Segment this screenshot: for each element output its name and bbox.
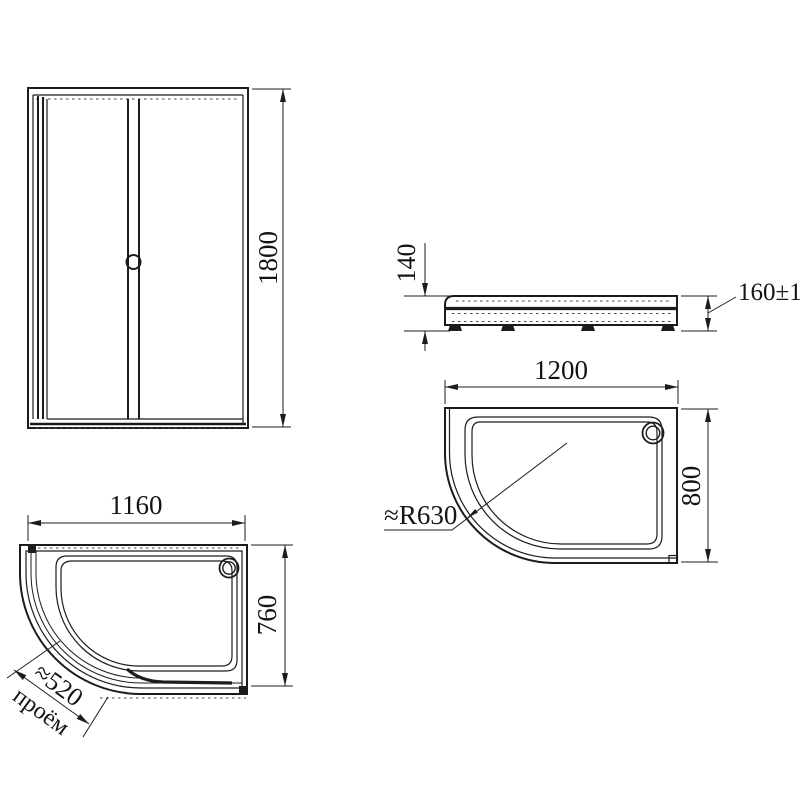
enclosure-top-view: 1160 760 ≈520 проём xyxy=(7,490,293,741)
door-left-wall-profile xyxy=(38,96,43,419)
tray-height-label: 140 xyxy=(392,244,421,283)
tray-profile-outline xyxy=(445,296,677,325)
enclosure-basin-outer xyxy=(56,556,237,671)
door-left-profile-lines xyxy=(33,95,47,419)
front-height-label: 1800 xyxy=(253,231,283,285)
wall-profile-cap-top xyxy=(28,545,36,553)
enclosure-width-label: 1160 xyxy=(110,490,163,520)
tray-depth-label: 800 xyxy=(676,466,706,507)
tray-profile-hatch xyxy=(452,314,672,322)
drain-inner-circle xyxy=(646,426,660,440)
side-view: 140 160±15 xyxy=(392,243,800,351)
wall-profile-cap-bottom xyxy=(239,686,248,693)
tray-basin-floor xyxy=(472,422,657,544)
front-view: 1800 xyxy=(28,88,291,428)
technical-drawing: 1800 140 160±15 ≈R630 1200 800 xyxy=(0,0,800,800)
install-height-leader xyxy=(708,297,736,313)
tray-top-view: ≈R630 1200 800 xyxy=(384,355,718,563)
tray-basin-outer xyxy=(465,417,662,549)
radius-label: ≈R630 xyxy=(384,500,457,530)
tray-width-label: 1200 xyxy=(534,355,588,385)
enclosure-depth-label: 760 xyxy=(252,595,282,636)
install-height-label: 160±15 xyxy=(738,279,800,306)
enclosure-basin-floor xyxy=(61,561,232,666)
door-track-outer xyxy=(31,551,242,683)
door-track-inner xyxy=(36,551,141,678)
door-center-stile xyxy=(128,99,139,419)
